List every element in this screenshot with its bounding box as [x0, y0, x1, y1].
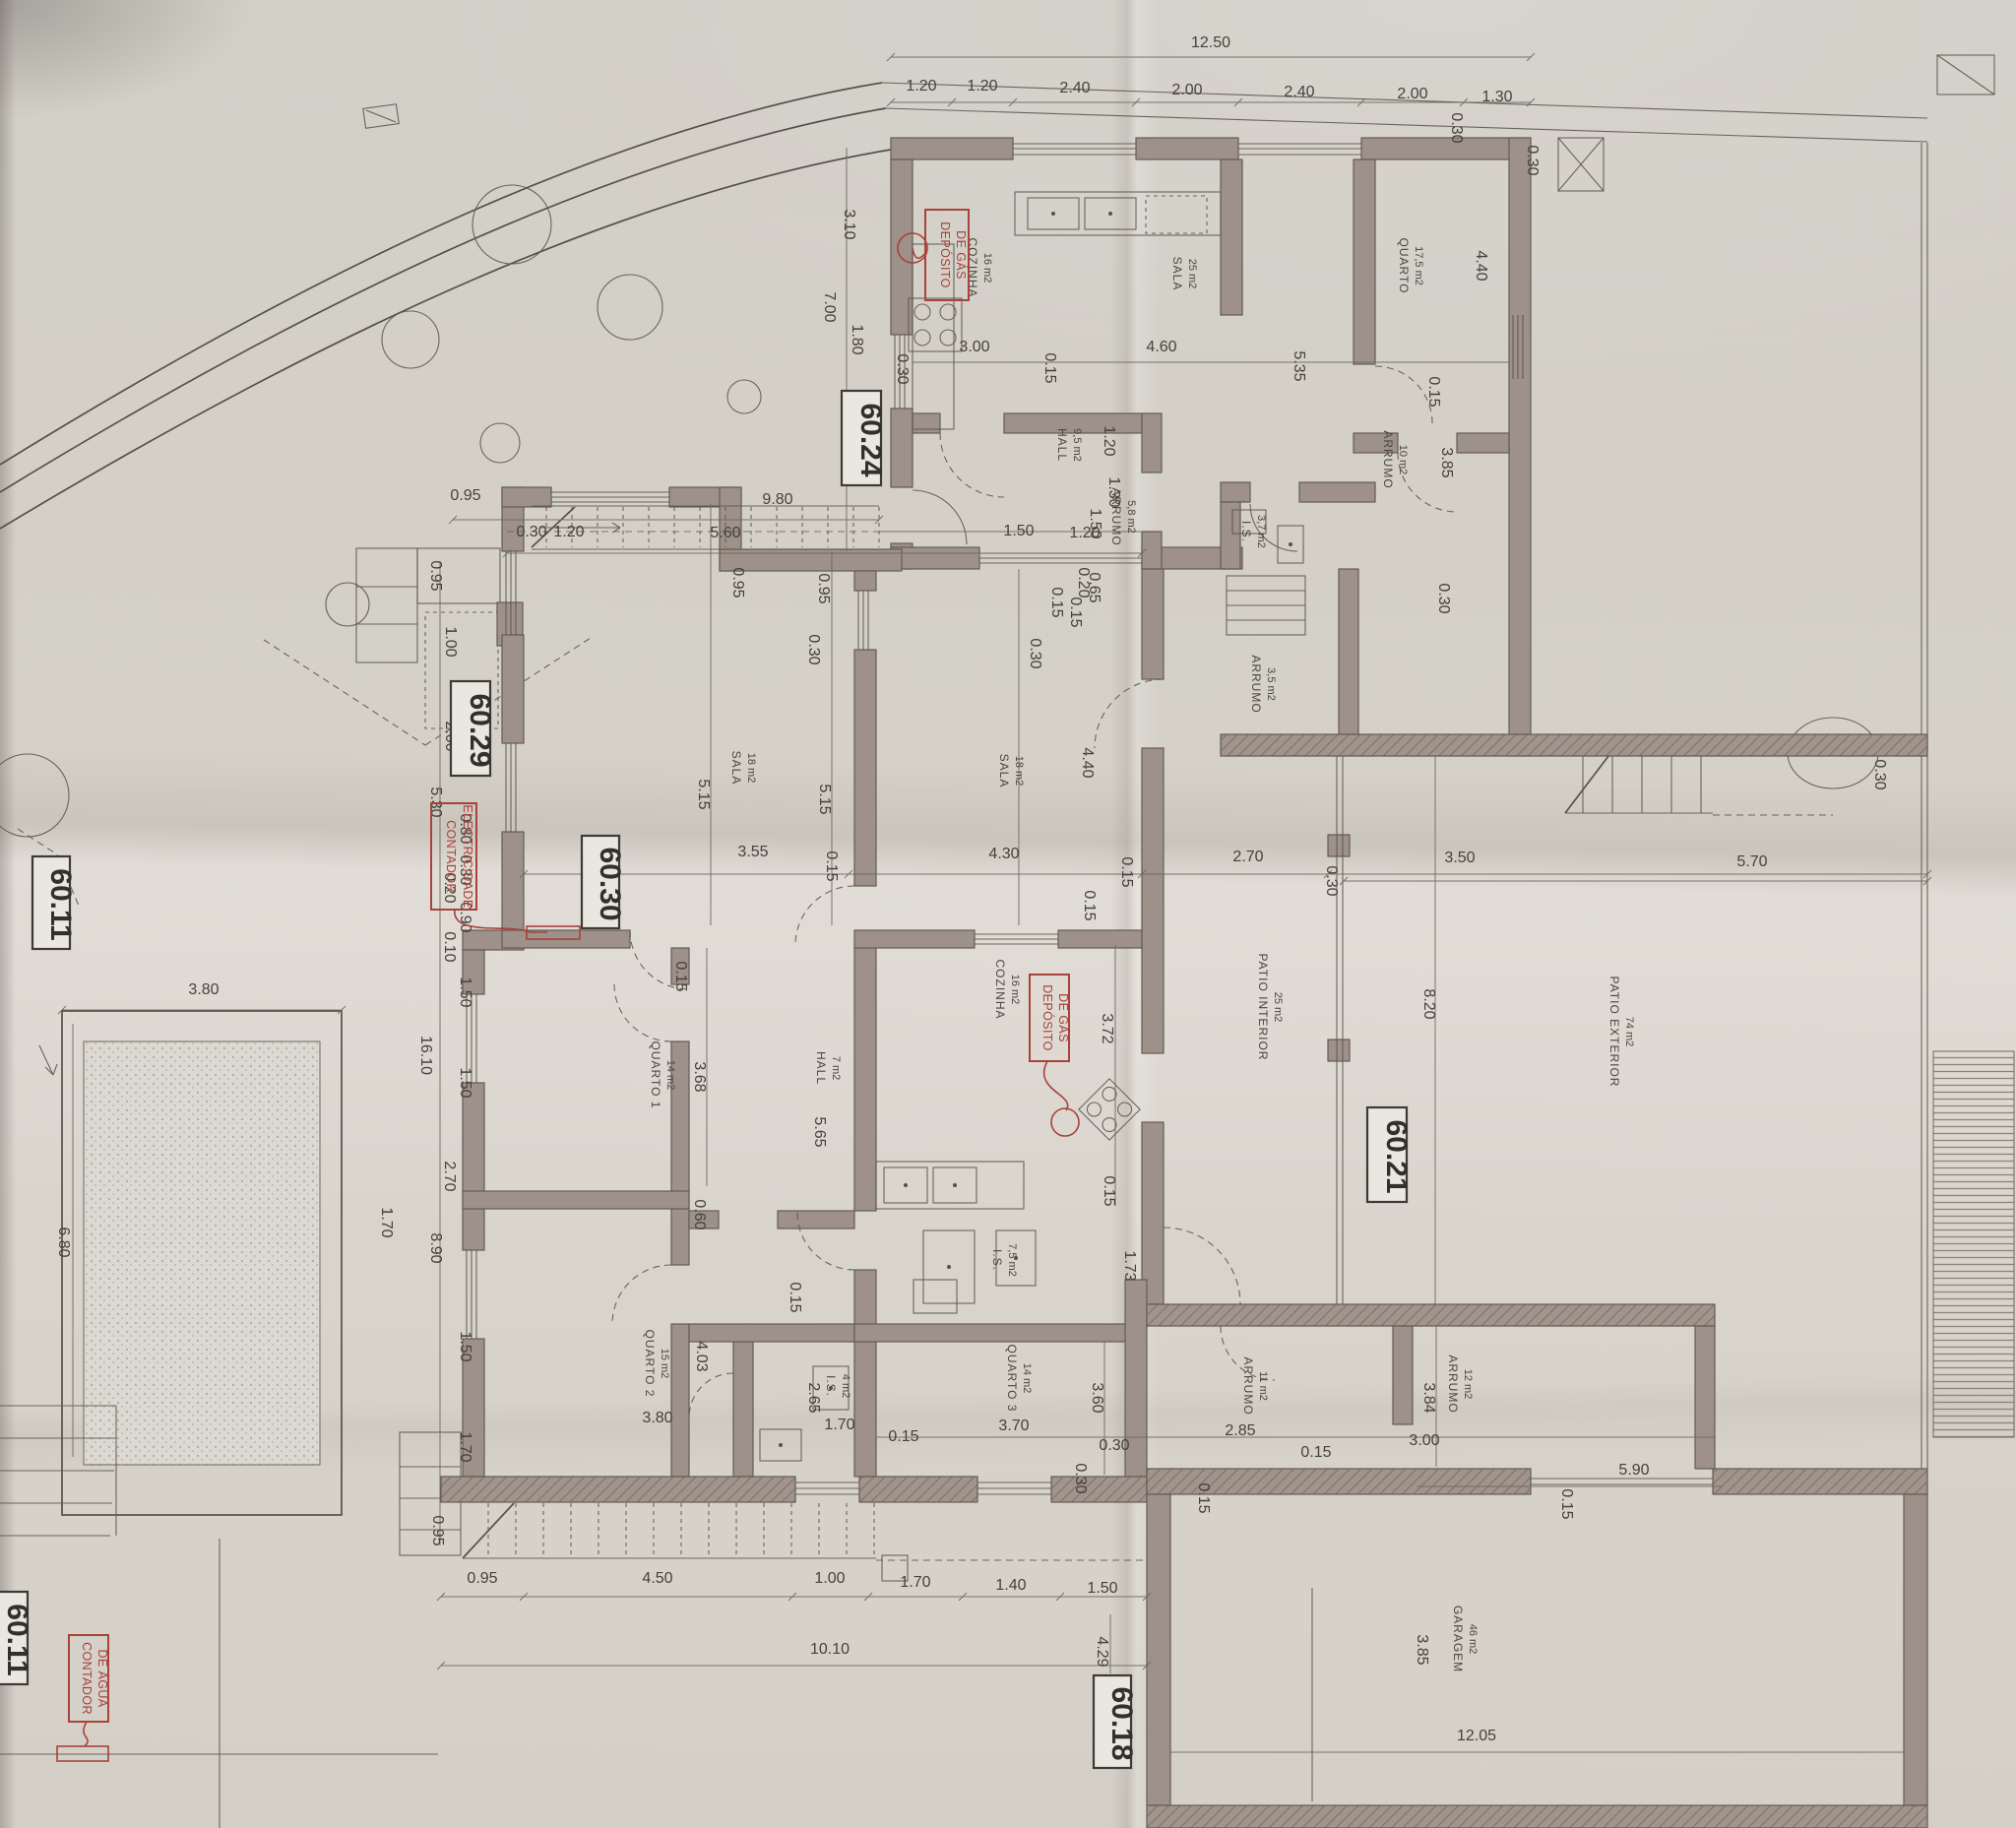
- dim-label: 10.10: [810, 1641, 850, 1658]
- red-label-line: CONTADOR: [80, 1642, 94, 1715]
- room-label: ARRUMO: [1241, 1356, 1255, 1415]
- room-label: I.S.: [1239, 521, 1253, 542]
- elevation-marker: 60.11: [1, 1604, 33, 1675]
- dim-label: 2.00: [1171, 82, 1202, 98]
- dim-label: 0.30: [1871, 759, 1888, 789]
- room-label: ARRUMO: [1249, 655, 1263, 713]
- dim-label: 1.50: [1003, 523, 1034, 539]
- dim-label: 0.30: [1448, 112, 1465, 143]
- elevation-marker: 60.11: [44, 868, 77, 940]
- room-label: I.S.: [824, 1375, 838, 1397]
- dim-label: 8.20: [1420, 988, 1437, 1019]
- dim-label: 5.15: [816, 784, 833, 814]
- dim-label: 3.84: [1420, 1382, 1437, 1413]
- dim-label: 12.50: [1191, 34, 1230, 51]
- dim-label: 12.05: [1457, 1728, 1496, 1744]
- dim-label: 2.40: [1284, 84, 1314, 100]
- dim-label: 0.15: [1067, 597, 1084, 627]
- dim-label: 1.70: [900, 1574, 930, 1591]
- dim-label: 1.20: [1101, 425, 1117, 456]
- room-area: 10 m2: [1397, 445, 1409, 475]
- dim-label: 0.15: [1425, 376, 1442, 407]
- room-area: 14 m2: [1021, 1363, 1033, 1394]
- dim-label: 1.73: [1121, 1250, 1138, 1281]
- dim-label: 1.20: [553, 524, 584, 540]
- dim-label: 2.65: [805, 1382, 822, 1413]
- room-area: 14 m2: [664, 1060, 676, 1091]
- room-area: 18 m2: [1013, 756, 1025, 787]
- dim-label: 1.50: [457, 977, 473, 1007]
- dim-label: 1.20: [906, 78, 936, 95]
- gas-tank-label-lower: DEPÓSITO DE GÁS: [1030, 975, 1079, 1136]
- dim-label: 3.85: [1414, 1634, 1430, 1665]
- room-label: QUARTO 2: [643, 1330, 657, 1398]
- dim-label: 1.70: [378, 1207, 395, 1237]
- dim-label: 0.15: [1041, 352, 1058, 383]
- elevation-marker: 60.24: [854, 403, 887, 476]
- dim-label: 4.29: [1094, 1636, 1110, 1667]
- red-label-line: ELECTRICIDADE: [461, 804, 474, 908]
- dim-label: 1.50: [457, 1067, 473, 1098]
- dim-label: 4.03: [693, 1341, 710, 1371]
- dim-label: 5.15: [695, 779, 712, 809]
- dim-label: 0.95: [467, 1570, 497, 1587]
- room-area: 46 m2: [1467, 1624, 1479, 1655]
- dim-label: 0.15: [1195, 1482, 1212, 1513]
- dim-label: 0.30: [805, 634, 822, 664]
- room-area: 74 m2: [1623, 1017, 1635, 1047]
- red-label-line: DEPÓSITO: [1040, 984, 1055, 1051]
- room-area: 16 m2: [981, 253, 993, 284]
- room-label: QUARTO 3: [1005, 1345, 1019, 1413]
- dim-label: 2.00: [1397, 86, 1427, 102]
- dim-label: 3.10: [841, 209, 857, 239]
- dimension-lines: [58, 53, 1931, 1752]
- dim-label: 0.30: [894, 353, 911, 384]
- dim-label: 3.72: [1099, 1013, 1115, 1043]
- room-area: 25 m2: [1186, 259, 1198, 289]
- dim-label: 0.95: [429, 1515, 446, 1545]
- dim-label: 0.95: [815, 573, 832, 603]
- dim-label: 5.35: [1291, 350, 1307, 381]
- dim-label: 0.30: [1524, 145, 1541, 175]
- room-label: SALA: [997, 754, 1011, 788]
- dim-label: 0.10: [441, 931, 458, 962]
- dim-label: 0.95: [450, 487, 480, 504]
- dim-label: 1.70: [457, 1431, 473, 1462]
- dim-label: 3.80: [188, 981, 219, 998]
- room-label: QUARTO 1: [649, 1041, 662, 1109]
- room-label: QUARTO: [1397, 238, 1411, 294]
- dim-label: 0.15: [672, 961, 689, 991]
- dim-label: 0.15: [1118, 856, 1135, 887]
- dim-label: 4.50: [642, 1570, 672, 1587]
- room-label: ARRUMO: [1446, 1355, 1460, 1413]
- dim-label: 1.40: [995, 1577, 1026, 1594]
- red-label-line: DE GÁS: [1056, 993, 1071, 1042]
- dim-label: 1.50: [1087, 1580, 1117, 1597]
- dim-label: 0.95: [729, 567, 746, 598]
- room-label: I.S.: [990, 1249, 1004, 1271]
- water-meter-label: CONTADOR DE ÁGUA: [57, 1635, 110, 1761]
- elevation-marker: 60.29: [464, 693, 496, 767]
- dim-label: 3.85: [1438, 447, 1455, 477]
- dim-label: 3.70: [998, 1418, 1029, 1434]
- room-label: GARAGEM: [1451, 1606, 1465, 1672]
- dim-label: 3.50: [1444, 850, 1475, 866]
- dim-label: 2.40: [1059, 80, 1090, 96]
- dim-label: 0.15: [787, 1282, 803, 1312]
- dim-label: 1.80: [849, 324, 865, 354]
- dim-label: 2.70: [441, 1161, 458, 1191]
- dim-label: 4.60: [1146, 339, 1176, 355]
- dim-label: 0.15: [1048, 587, 1065, 617]
- room-label: PATIO INTERIOR: [1256, 954, 1270, 1061]
- dim-label: 3.55: [737, 844, 768, 860]
- dim-label: 1.20: [967, 78, 997, 95]
- room-area: 4 m2: [840, 1374, 851, 1398]
- dim-label: 4.40: [1473, 250, 1489, 281]
- dim-label: 0.30: [1323, 865, 1340, 896]
- dim-label: 1.00: [814, 1570, 845, 1587]
- room-area: 25 m2: [1272, 992, 1284, 1023]
- room-label: SALA: [1170, 257, 1184, 291]
- room-area: 3,7 m2: [1255, 515, 1267, 548]
- room-label: HALL: [814, 1051, 828, 1085]
- dim-label: 5.90: [1618, 1462, 1649, 1479]
- room-label: PATIO EXTERIOR: [1607, 977, 1621, 1088]
- room-area: 17,5 m2: [1413, 246, 1424, 285]
- dim-label: 3.68: [691, 1061, 708, 1092]
- room-area: 7,5 m2: [1006, 1243, 1018, 1277]
- dim-label: 6.80: [55, 1227, 72, 1257]
- dim-label: 0.30: [1072, 1463, 1089, 1493]
- dim-label: 0.15: [1558, 1488, 1575, 1519]
- dim-label: 3.00: [1409, 1432, 1439, 1449]
- dim-label: 4.40: [1079, 747, 1096, 778]
- room-area: 11 m2: [1257, 1371, 1269, 1401]
- elevation-marker: 60.30: [594, 847, 626, 920]
- floorplan-photo: 12.50 1.20 1.20 2.40 2.00 2.40 2.00 1.30…: [0, 0, 2016, 1828]
- room-area: 12 m2: [1462, 1369, 1474, 1400]
- red-label-line: CONTADOR: [444, 820, 458, 893]
- fixtures: [760, 192, 1303, 1461]
- dim-label: 5.65: [811, 1116, 828, 1147]
- room-area: 16 m2: [1009, 975, 1021, 1005]
- dim-label: 1.30: [1481, 89, 1512, 105]
- dim-label: 1.20: [1069, 525, 1100, 541]
- fence-lines: [1312, 756, 1343, 1801]
- red-label-line: DE ÁGUA: [95, 1649, 110, 1707]
- room-area: 7 m2: [830, 1056, 842, 1080]
- room-area: 15 m2: [659, 1349, 670, 1379]
- dim-label: 5.70: [1736, 853, 1767, 870]
- dim-label: 9.80: [762, 491, 792, 508]
- dim-label: 0.15: [823, 851, 840, 881]
- stove-icon: [1079, 1079, 1140, 1140]
- dim-label: 0.30: [1027, 638, 1043, 668]
- dim-label: 5.60: [710, 525, 740, 541]
- dim-label: 0.15: [1101, 1175, 1117, 1206]
- dim-label: 0.15: [1300, 1444, 1331, 1461]
- room-label: ARRUMO: [1381, 430, 1395, 488]
- dim-label: 0.65: [1086, 572, 1102, 602]
- elevation-marker: 60.18: [1105, 1686, 1138, 1760]
- room-label: COZINHA: [993, 960, 1007, 1020]
- dim-label: 0.15: [1081, 890, 1098, 920]
- dim-label: 0.95: [427, 560, 444, 591]
- room-label: ARRUMO: [1109, 487, 1123, 545]
- dim-label: 0.30: [1099, 1437, 1129, 1454]
- room-label: HALL: [1055, 428, 1069, 462]
- dim-label: 16.10: [417, 1036, 434, 1075]
- dim-label: 3.60: [1089, 1382, 1105, 1413]
- red-label-line: DE GÁS: [954, 230, 969, 280]
- dim-label: 0.30: [516, 524, 546, 540]
- dim-label: 0.60: [691, 1199, 708, 1229]
- room-label: SALA: [729, 751, 743, 786]
- dim-label: 2.70: [1232, 849, 1263, 865]
- dim-label: 1.00: [442, 626, 459, 657]
- red-label-line: DEPÓSITO: [938, 221, 953, 288]
- dim-label: 1.70: [824, 1417, 854, 1433]
- floor-plan-svg: 12.50 1.20 1.20 2.40 2.00 2.40 2.00 1.30…: [0, 0, 2016, 1828]
- dim-label: 0.15: [888, 1428, 918, 1445]
- dim-label: 1.50: [457, 1331, 473, 1361]
- dim-label: 2.85: [1225, 1422, 1255, 1439]
- room-area: 18 m2: [745, 753, 757, 784]
- dim-label: 4.30: [988, 846, 1019, 862]
- room-area: 3,5 m2: [1265, 667, 1277, 701]
- pool: [0, 1011, 342, 1536]
- room-area: 5,8 m2: [1125, 500, 1137, 534]
- dim-label: 0.30: [1435, 583, 1452, 613]
- room-area: 9,5 m2: [1071, 428, 1083, 462]
- dim-label: 8.90: [427, 1232, 444, 1263]
- dim-label: 3.80: [642, 1410, 672, 1426]
- dim-label: 3.00: [959, 339, 989, 355]
- dim-label: 7.00: [821, 291, 838, 322]
- elevation-marker: 60.21: [1380, 1119, 1413, 1193]
